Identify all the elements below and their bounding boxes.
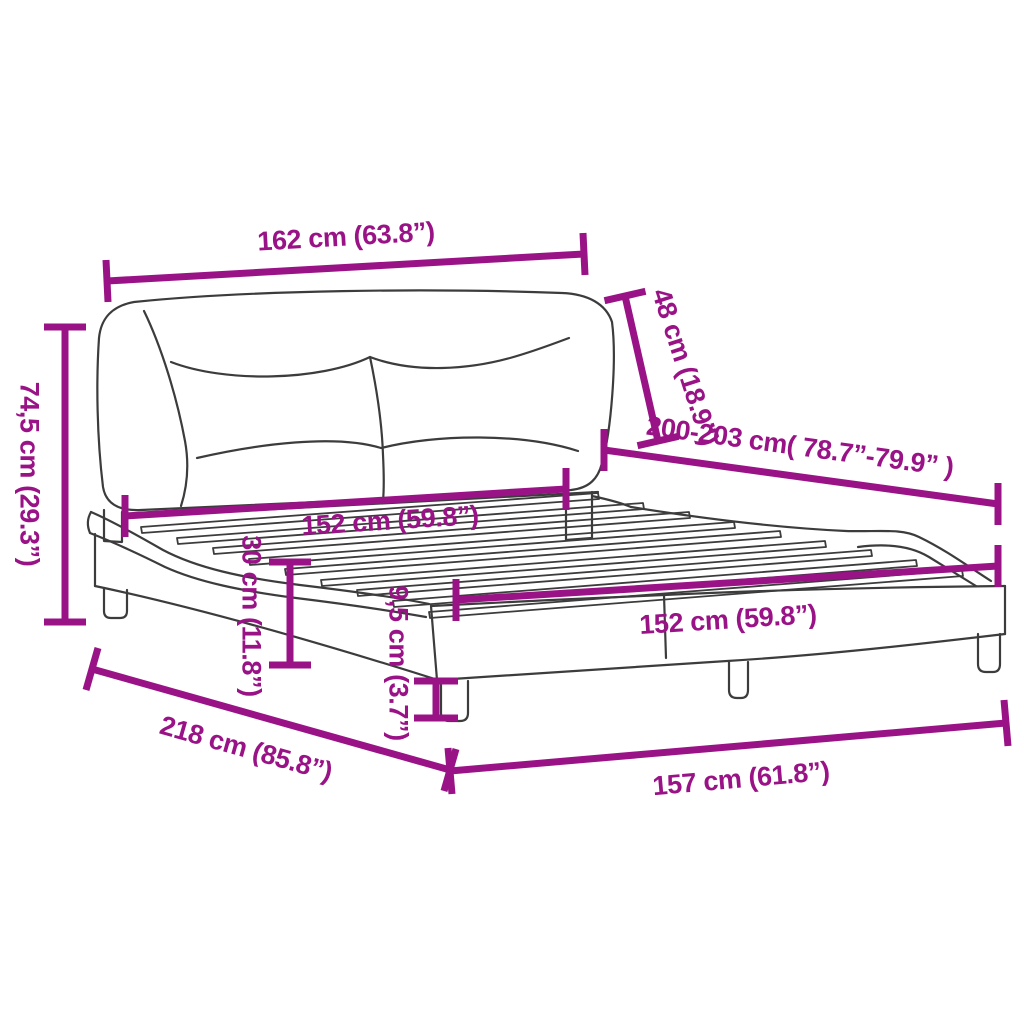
bed-leg-center-right <box>729 662 748 698</box>
cushion-lower-seam <box>197 437 578 458</box>
dimension-leg-height <box>414 681 458 718</box>
cushion-center-seam <box>370 357 384 501</box>
dimension-lines <box>44 233 1008 794</box>
left-side-rail-nose <box>88 512 91 533</box>
label-text: 9,5 cm (3.7”) <box>383 585 414 740</box>
dimension-total-height <box>44 327 86 622</box>
bed-leg-right <box>978 634 1000 672</box>
label-text: 74,5 cm (29.3”) <box>14 382 45 567</box>
label-text: 30 cm (11.8”) <box>236 535 267 696</box>
cushion-side-panel-seam <box>144 311 187 506</box>
dimension-frame-height <box>269 562 311 665</box>
bed-frame-illustration <box>0 0 1024 1024</box>
base-foot-bottom-edge <box>437 634 1005 680</box>
dimension-diagram: 162 cm (63.8”) 48 cm (18.9”) 200-203 cm(… <box>0 0 1024 1024</box>
bed-line-art <box>88 290 1005 721</box>
